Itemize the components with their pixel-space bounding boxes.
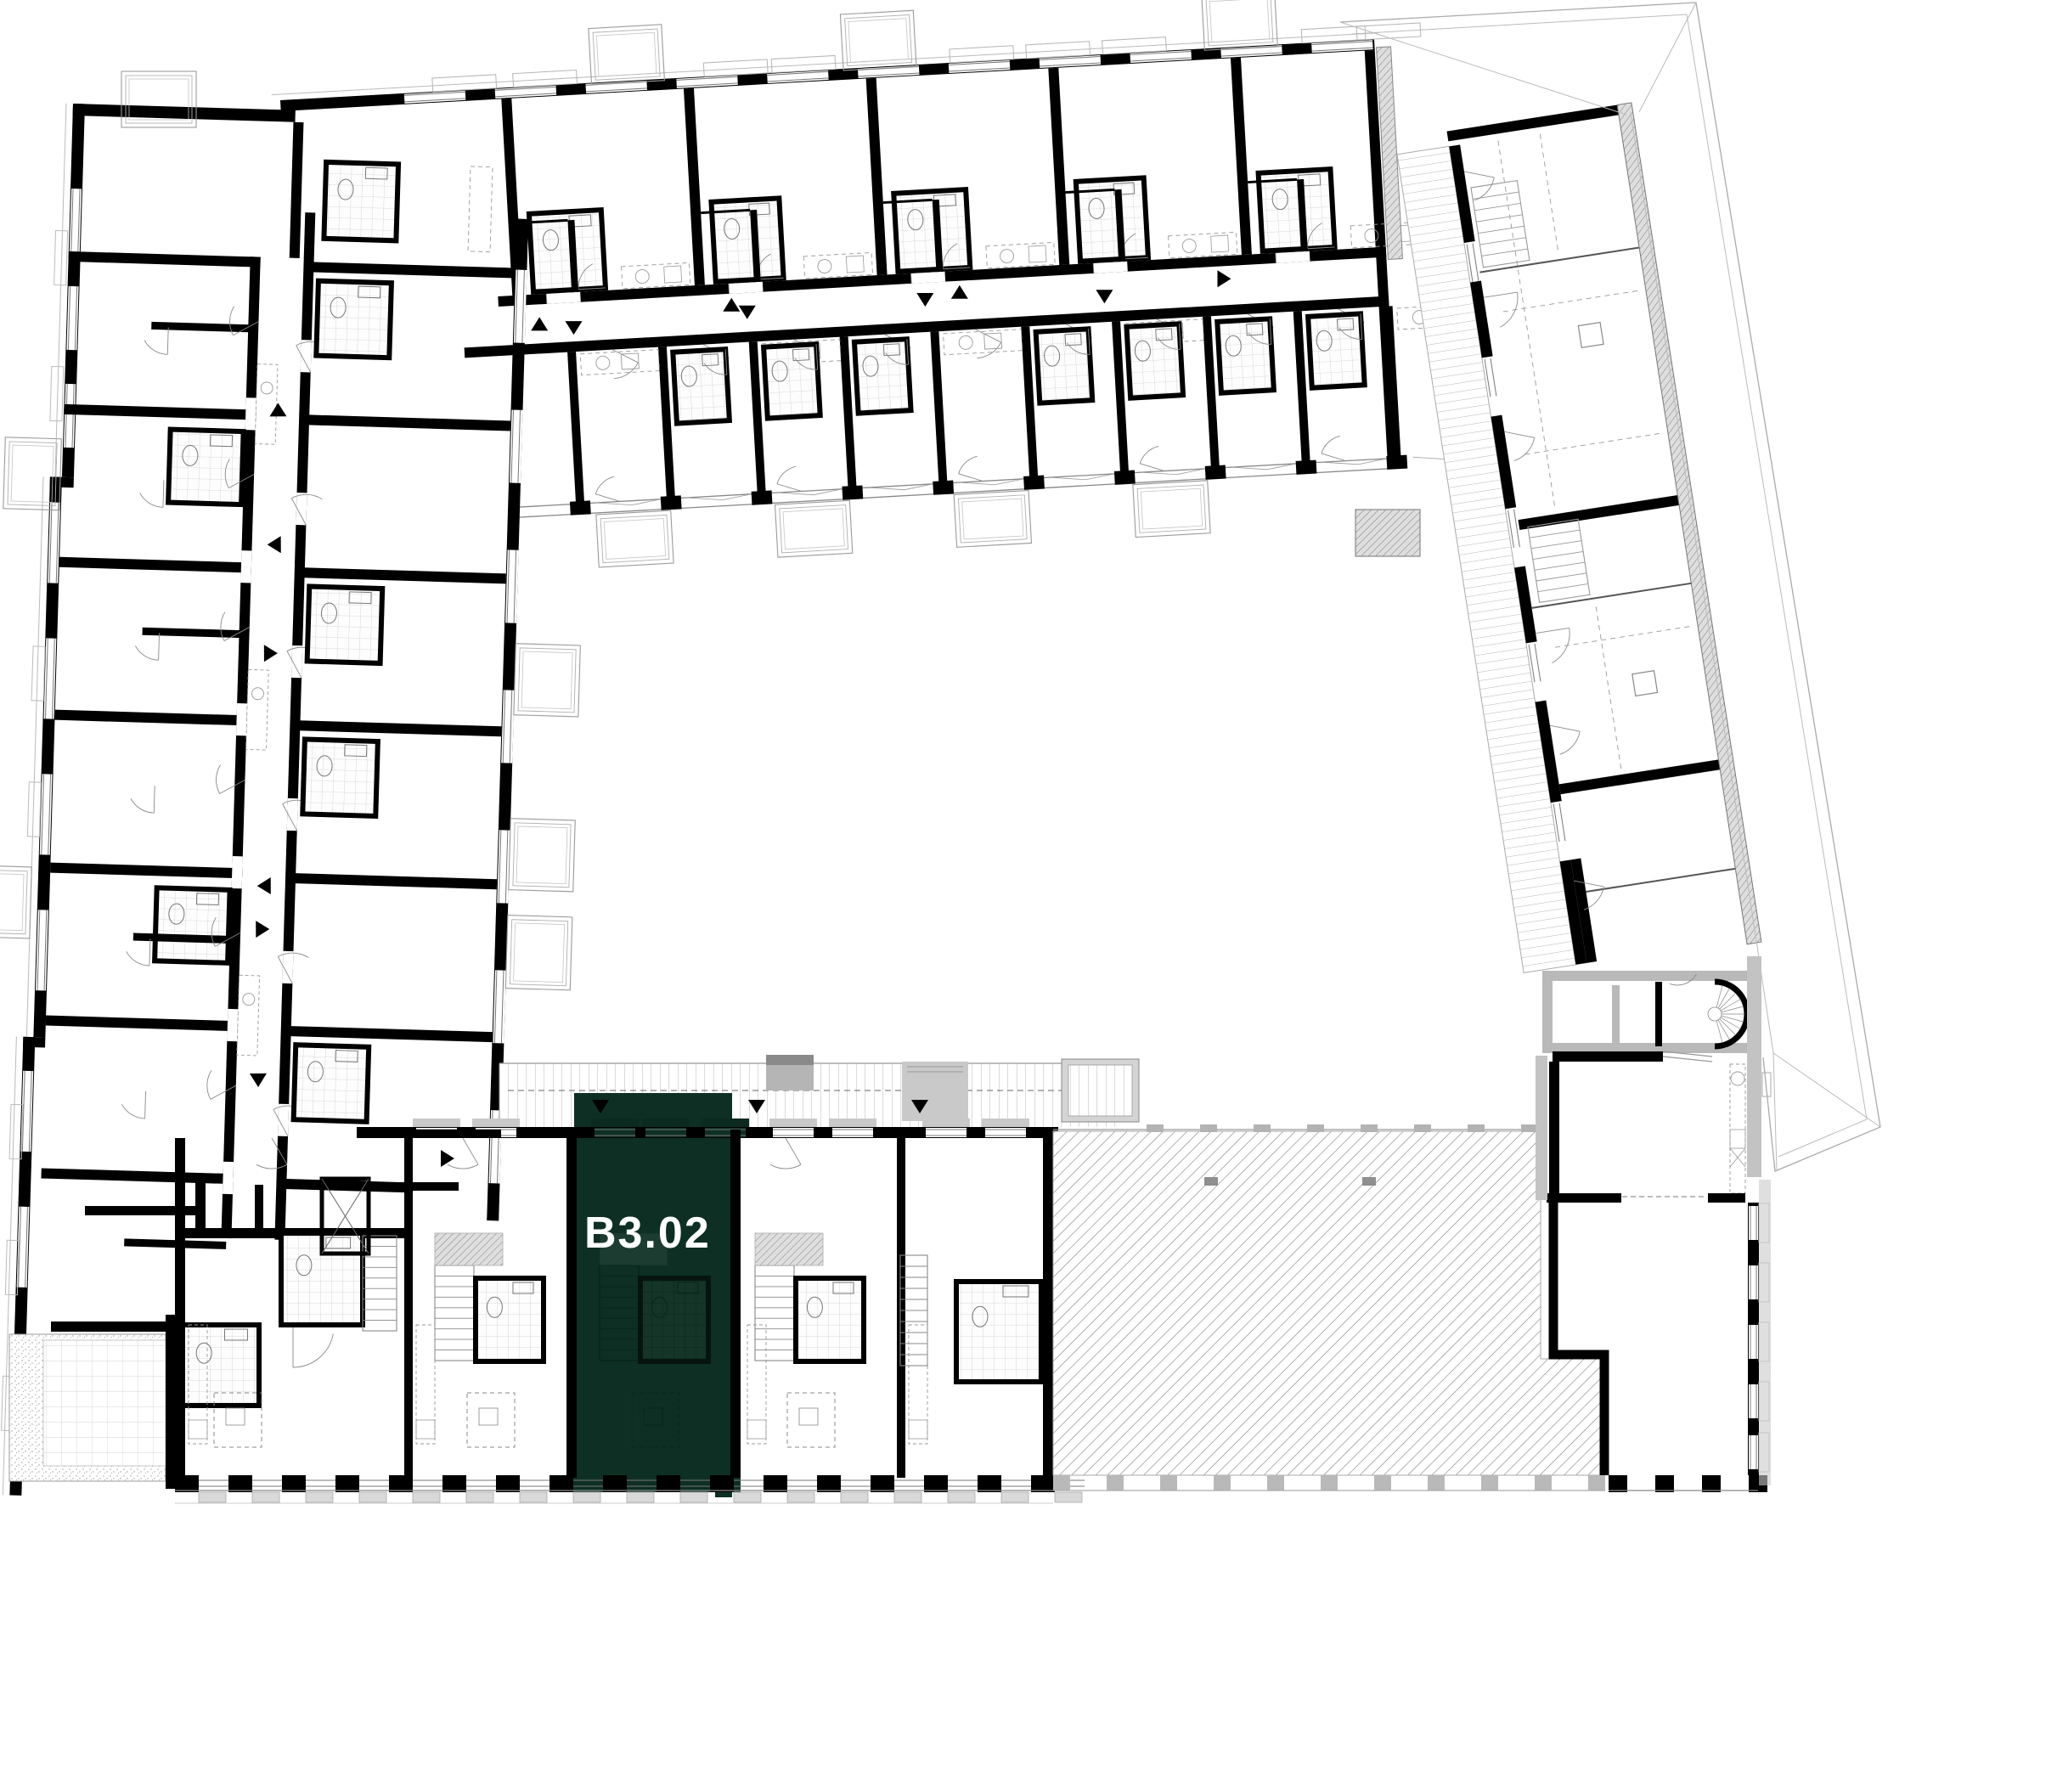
svg-text:B3.02: B3.02 bbox=[584, 1209, 711, 1258]
